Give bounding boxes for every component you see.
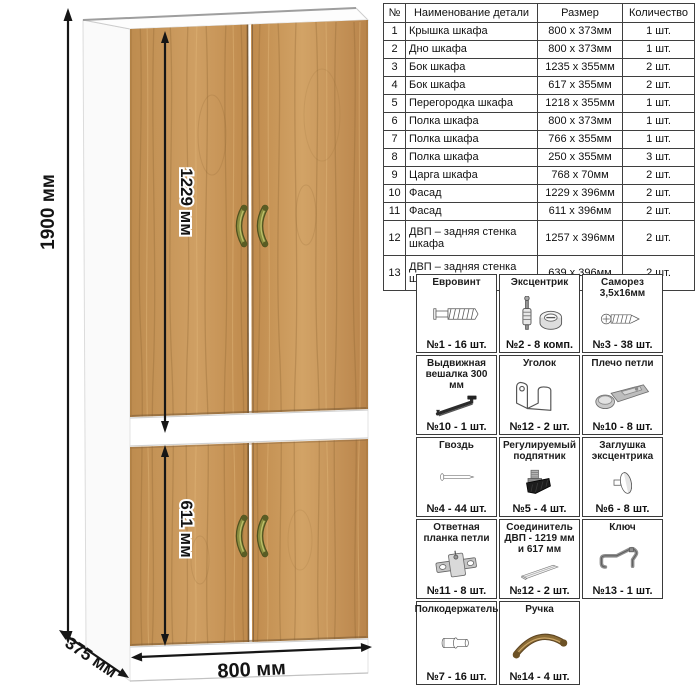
table-row: 9Царга шкафа768 x 70мм2 шт.	[384, 167, 695, 185]
hardware-cell-otvetnaya-planka: Ответная планка петли №11 - 8 шт.	[416, 519, 497, 599]
side-panel	[83, 20, 130, 681]
col-header-qty: Количество	[623, 4, 695, 23]
hardware-cell-excentric: Эксцентрик №2 - 8 комп.	[499, 274, 580, 353]
parts-table: № Наименование детали Размер Количество …	[383, 3, 695, 291]
wardrobe-illustration: 1900 мм 1229 мм 611 мм 800 мм 375 мм	[0, 0, 420, 700]
cam-lock-icon	[505, 296, 575, 332]
table-row: 11Фасад611 x 396мм2 шт.	[384, 203, 695, 221]
hardware-grid: Евровинт №1 - 16 шт. Эксцентрик №2 - 8 к…	[416, 274, 663, 685]
dim-lower-facade-label: 611 мм	[177, 500, 196, 557]
hardware-cell-ruchka: Ручка №14 - 4 шт.	[499, 601, 580, 685]
table-row: 5Перегородка шкафа1218 x 355мм1 шт.	[384, 95, 695, 113]
hardware-cell-klyuch: Ключ №13 - 1 шт.	[582, 519, 663, 599]
screw-icon	[588, 305, 658, 333]
cam-cover-icon	[588, 468, 658, 498]
col-header-name: Наименование детали	[406, 4, 538, 23]
col-header-size: Размер	[538, 4, 623, 23]
table-row: 2Дно шкафа800 x 373мм1 шт.	[384, 41, 695, 59]
table-row: 3Бок шкафа1235 x 355мм2 шт.	[384, 59, 695, 77]
table-row: 12ДВП – задняя стенка шкафа1257 x 396мм2…	[384, 221, 695, 256]
table-row: 8Полка шкафа250 x 355мм3 шт.	[384, 149, 695, 167]
hinge-plate-icon	[422, 549, 492, 581]
hardware-cell-zaglushka: Заглушка эксцентрика №6 - 8 шт.	[582, 437, 663, 517]
shelf-pin-icon	[422, 630, 492, 656]
handle-icon	[505, 623, 575, 663]
hinge-arm-icon	[588, 378, 658, 412]
nail-icon	[422, 466, 492, 488]
dim-width-label: 800 мм	[217, 657, 287, 683]
hardware-cell-plecho-petli: Плечо петли №10 - 8 шт.	[582, 355, 663, 435]
table-row: 6Полка шкафа800 x 373мм1 шт.	[384, 113, 695, 131]
table-row: 1Крышка шкафа800 x 373мм1 шт.	[384, 23, 695, 41]
dim-upper-facade-label: 1229 мм	[177, 168, 196, 236]
dim-height-label: 1900 мм	[38, 174, 59, 250]
hardware-cell-podpyatnik: Регулируемый подпятник №5 - 4 шт.	[499, 437, 580, 517]
adjustable-foot-icon	[505, 468, 575, 498]
hardware-cell-soedinitel: Соединитель ДВП - 1219 мм и 617 мм №12 -…	[499, 519, 580, 599]
hardware-cell-ugolok: Уголок №12 - 2 шт.	[499, 355, 580, 435]
table-row: 4Бок шкафа617 x 355мм2 шт.	[384, 77, 695, 95]
hardware-cell-gvozd: Гвоздь №4 - 44 шт.	[416, 437, 497, 517]
table-row: 7Полка шкафа766 x 355мм1 шт.	[384, 131, 695, 149]
euro-screw-icon	[422, 299, 492, 329]
corner-bracket-icon	[505, 377, 575, 413]
hex-key-icon	[588, 543, 658, 575]
hardware-cell-samorez: Саморез 3,5х16мм №3 - 38 шт.	[582, 274, 663, 353]
parts-table-header: № Наименование детали Размер Количество	[384, 4, 695, 23]
hardware-cell-polkoderzhatel: Полкодержатель №7 - 16 шт.	[416, 601, 497, 685]
table-row: 10Фасад1229 x 396мм2 шт.	[384, 185, 695, 203]
hardware-cell-veshalka: Выдвижная вешалка 300 мм №10 - 1 шт.	[416, 355, 497, 435]
col-header-num: №	[384, 4, 406, 23]
hardware-cell-eurovint: Евровинт №1 - 16 шт.	[416, 274, 497, 353]
pullout-hanger-icon	[422, 393, 492, 419]
hdf-connector-icon	[505, 558, 575, 582]
